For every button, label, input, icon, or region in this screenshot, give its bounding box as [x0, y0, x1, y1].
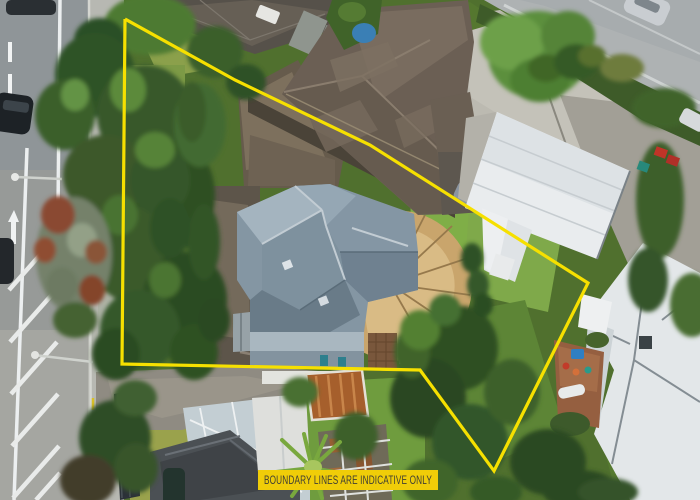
svg-text:BOUNDARY LINES ARE INDICATIVE: BOUNDARY LINES ARE INDICATIVE ONLY	[264, 474, 432, 487]
